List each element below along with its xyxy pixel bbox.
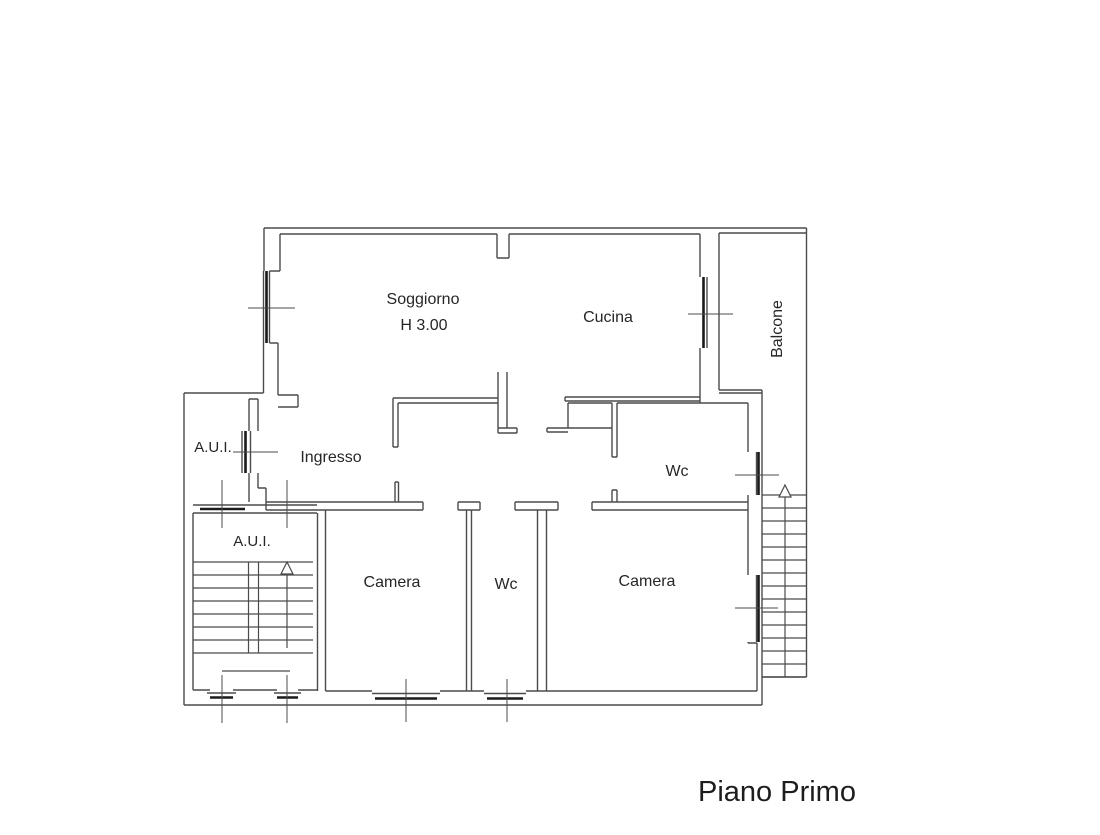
room-height-note: H 3.00 — [400, 317, 447, 334]
external-stair-treads — [762, 495, 807, 677]
floor-plan-drawing: Soggiorno H 3.00 Cucina Balcone A.U.I. I… — [0, 0, 1100, 835]
room-label-wc-upper: Wc — [665, 463, 688, 480]
room-label-aui-upper: A.U.I. — [194, 439, 232, 456]
walls — [184, 228, 807, 705]
room-label-aui-stairwell: A.U.I. — [233, 533, 271, 550]
stair-direction-arrow-icon — [779, 485, 791, 497]
room-label-balcone: Balcone — [769, 300, 786, 358]
stair-direction-arrow-icon — [281, 562, 293, 574]
room-label-wc-lower: Wc — [494, 576, 517, 593]
window-centerline-ticks — [222, 308, 779, 723]
room-label-camera-right: Camera — [619, 573, 676, 590]
internal-stair-treads — [193, 562, 313, 671]
outer-walls — [184, 228, 807, 705]
floor-plan-page: Soggiorno H 3.00 Cucina Balcone A.U.I. I… — [0, 0, 1100, 835]
staircase-external — [762, 485, 807, 677]
room-label-soggiorno: Soggiorno — [387, 291, 460, 308]
room-label-ingresso: Ingresso — [300, 449, 361, 466]
window-glazing — [200, 271, 759, 699]
room-label-camera-left: Camera — [364, 574, 421, 591]
window-glass-lines — [200, 271, 779, 723]
staircase-internal — [193, 562, 313, 671]
room-label-cucina: Cucina — [583, 309, 633, 326]
plan-title: Piano Primo — [698, 776, 856, 808]
room-labels: Soggiorno H 3.00 Cucina Balcone A.U.I. I… — [194, 291, 786, 593]
